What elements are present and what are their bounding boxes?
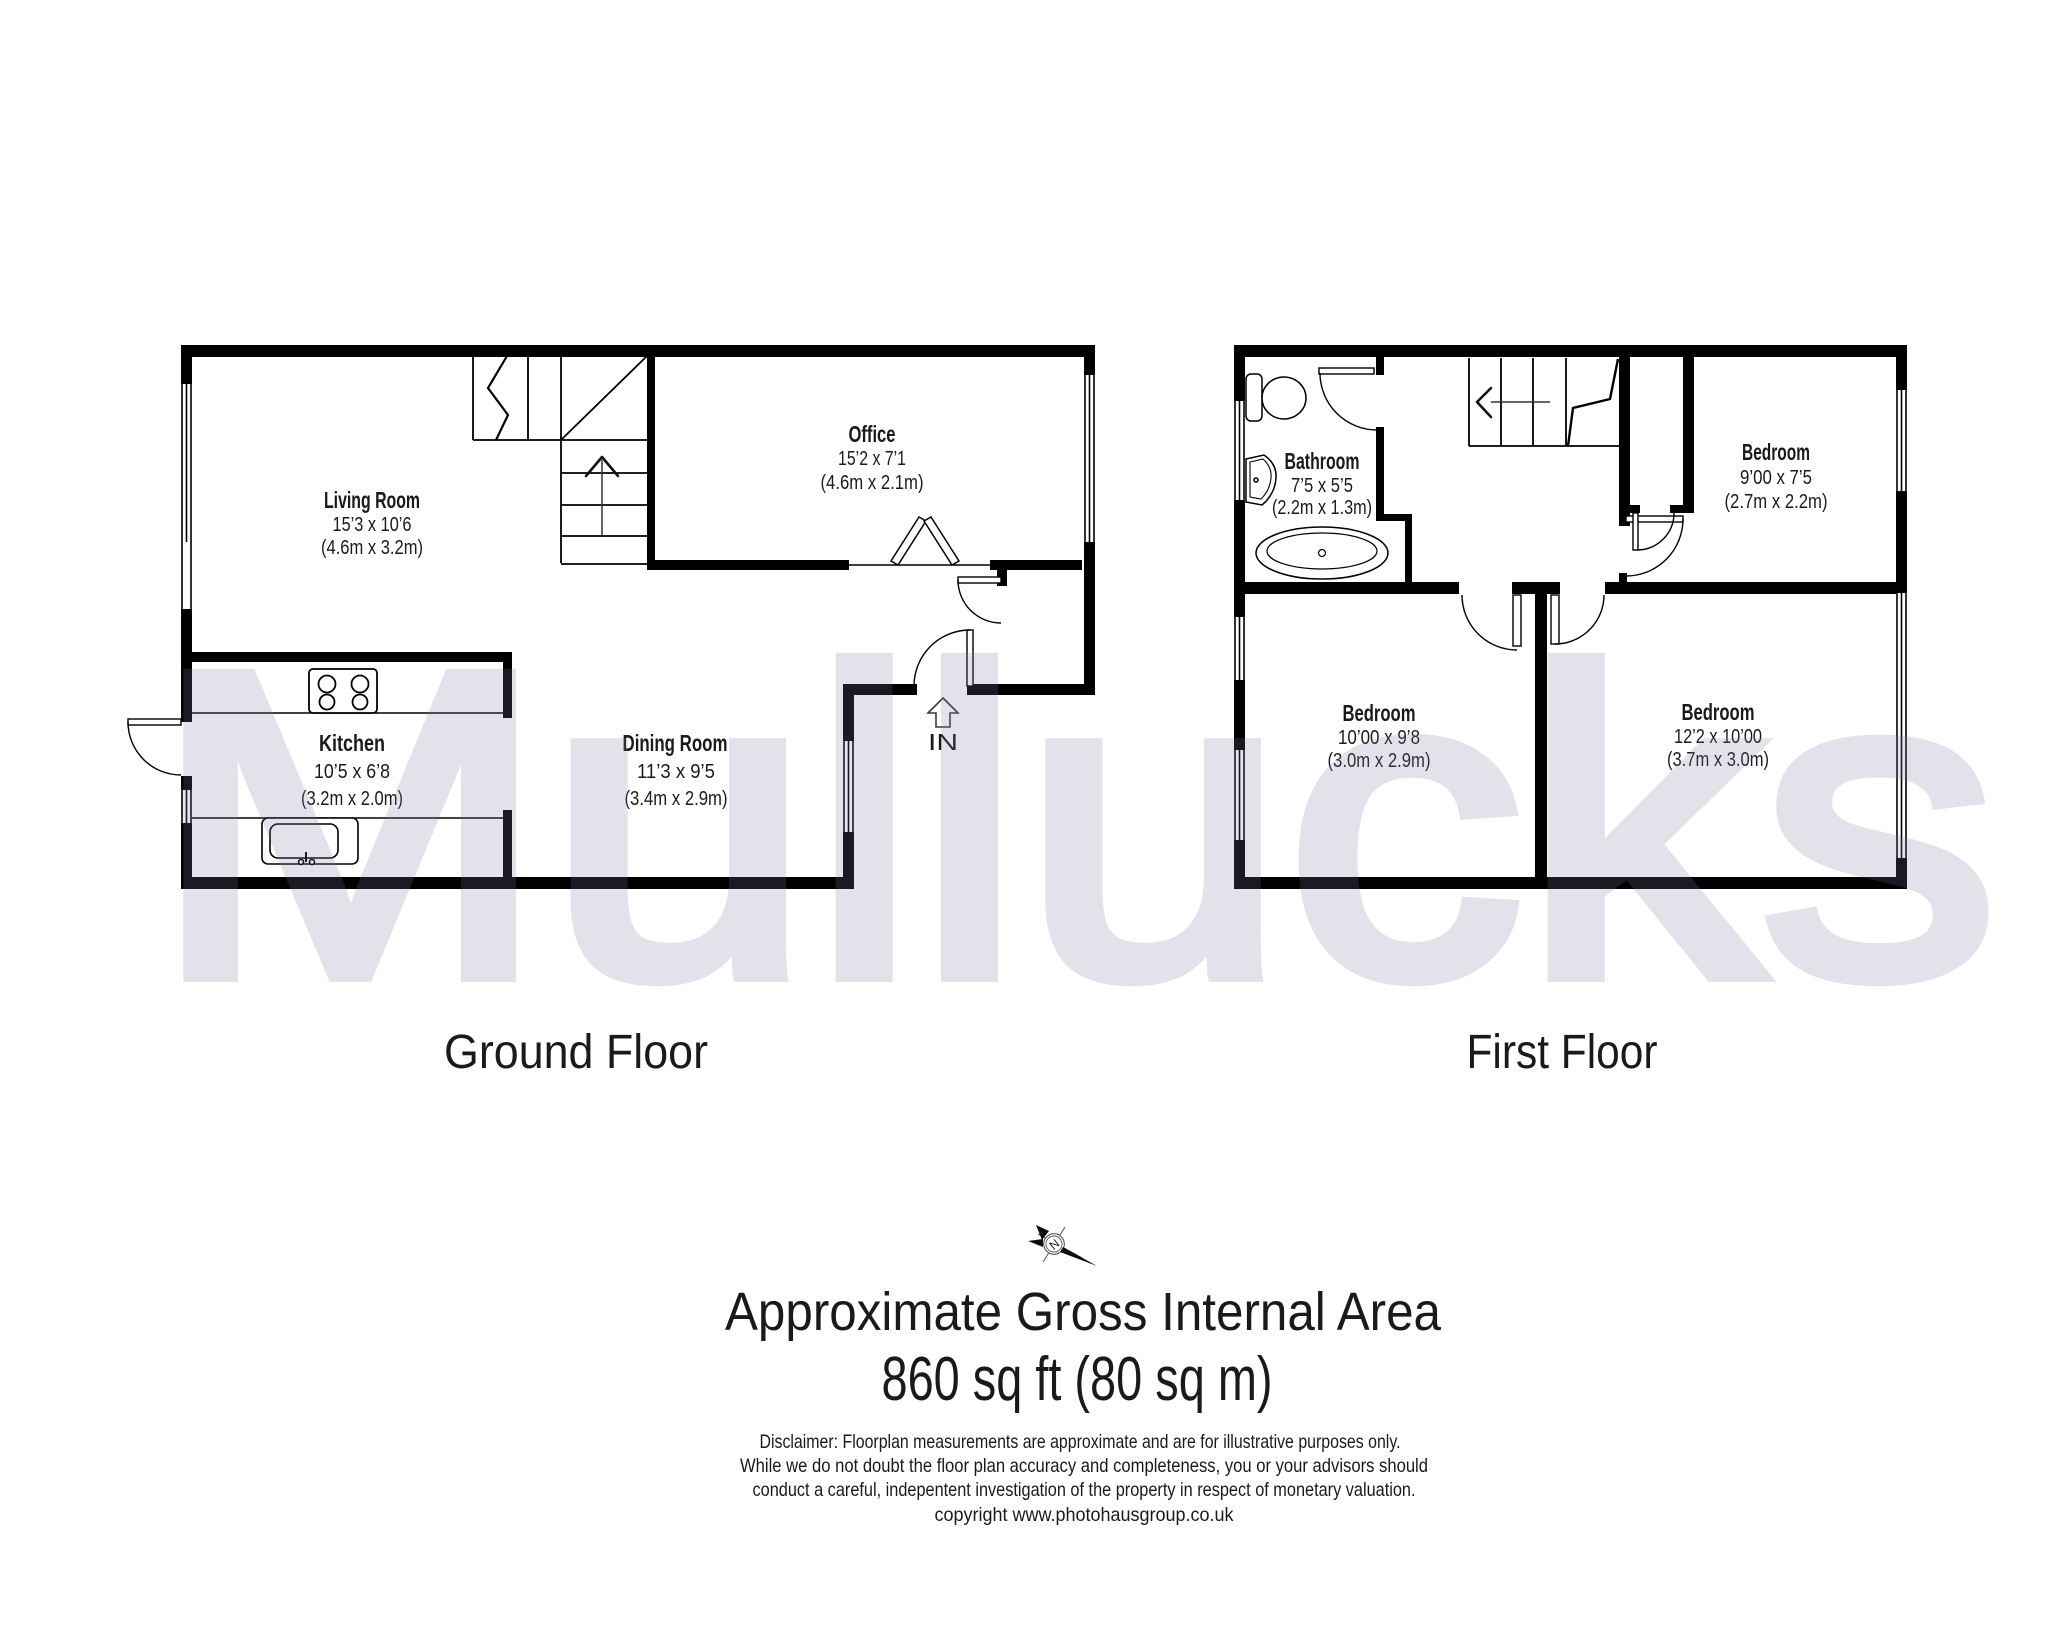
svg-text:(2.2m x 1.3m): (2.2m x 1.3m): [1272, 497, 1372, 519]
svg-text:(2.7m x 2.2m): (2.7m x 2.2m): [1725, 491, 1828, 513]
svg-text:15’2 x 7’1: 15’2 x 7’1: [838, 448, 906, 470]
svg-text:860 sq ft (80 sq m): 860 sq ft (80 sq m): [882, 1345, 1273, 1414]
svg-text:conduct a careful, indepentent: conduct a careful, indepentent investiga…: [753, 1479, 1416, 1501]
svg-text:Ground Floor: Ground Floor: [444, 1026, 708, 1079]
svg-text:First Floor: First Floor: [1467, 1026, 1658, 1079]
svg-text:7’5 x 5’5: 7’5 x 5’5: [1291, 475, 1353, 497]
svg-text:Bedroom: Bedroom: [1742, 439, 1810, 465]
svg-text:While we do not doubt the floo: While we do not doubt the floor plan acc…: [740, 1455, 1428, 1477]
svg-text:Approximate Gross Internal Are: Approximate Gross Internal Area: [725, 1282, 1442, 1342]
svg-text:(4.6m x 3.2m): (4.6m x 3.2m): [321, 537, 423, 559]
svg-text:Disclaimer: Floorplan measurem: Disclaimer: Floorplan measurements are a…: [760, 1431, 1401, 1453]
svg-text:copyright www.photohausgroup.c: copyright www.photohausgroup.co.uk: [935, 1504, 1234, 1526]
svg-text:9’00 x 7’5: 9’00 x 7’5: [1740, 467, 1812, 489]
svg-text:15’3 x 10’6: 15’3 x 10’6: [333, 514, 412, 536]
svg-text:Office: Office: [849, 421, 896, 447]
svg-text:(4.6m x 2.1m): (4.6m x 2.1m): [821, 472, 924, 494]
svg-text:Mullucks: Mullucks: [152, 582, 1998, 1068]
svg-text:Living Room: Living Room: [324, 487, 420, 513]
svg-text:Bathroom: Bathroom: [1285, 448, 1360, 474]
